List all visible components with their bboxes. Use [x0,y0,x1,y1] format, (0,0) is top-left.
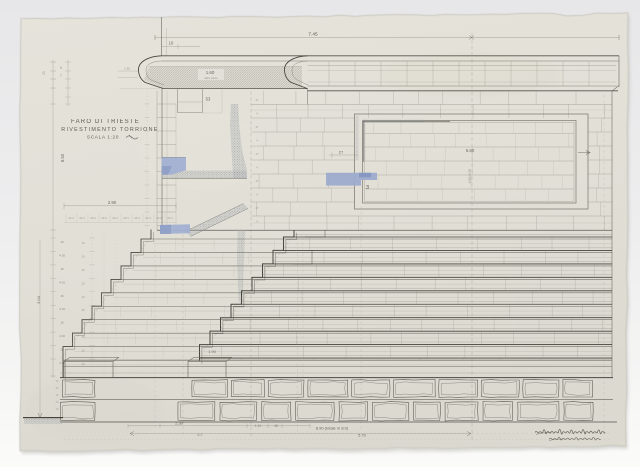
svg-text:48: 48 [274,424,278,428]
svg-text:10: 10 [81,349,85,353]
svg-text:47: 47 [255,179,259,183]
svg-text:1.30: 1.30 [124,67,130,71]
svg-text:8.90 (totale m 8.0): 8.90 (totale m 8.0) [316,426,349,431]
svg-text:8.50: 8.50 [60,153,65,162]
svg-text:3: 3 [366,185,369,191]
svg-text:20 4: 20 4 [68,216,74,220]
svg-text:16: 16 [60,267,64,271]
svg-text:16: 16 [60,294,64,298]
svg-text:20 4: 20 4 [79,216,85,220]
svg-text:7: 7 [60,74,62,78]
svg-text:0.50×0.50: 0.50×0.50 [468,169,472,183]
svg-text:5: 5 [60,66,62,70]
svg-text:4 16: 4 16 [59,280,65,284]
svg-text:20 4: 20 4 [134,216,140,220]
svg-text:10: 10 [169,41,174,46]
svg-text:20 4: 20 4 [123,216,129,220]
svg-text:27: 27 [339,150,344,155]
svg-text:10: 10 [81,295,85,299]
svg-text:16: 16 [60,240,64,244]
svg-text:16: 16 [60,348,64,352]
svg-text:6.2: 6.2 [198,433,203,437]
svg-text:10: 10 [81,308,85,312]
svg-text:SCALA 1:20: SCALA 1:20 [87,135,119,141]
svg-text:4 16: 4 16 [59,307,65,311]
svg-text:10: 10 [81,268,85,272]
svg-text:2.30: 2.30 [175,421,184,426]
svg-text:5.70: 5.70 [358,433,367,438]
svg-text:4 16: 4 16 [59,253,65,257]
svg-text:4 16: 4 16 [59,361,65,365]
svg-text:RIVESTIMENTO TORRIONE: RIVESTIMENTO TORRIONE [61,127,158,133]
svg-text:47: 47 [255,152,259,156]
svg-text:1.10: 1.10 [255,424,262,428]
svg-text:altra parte: altra parte [204,76,218,80]
svg-text:20 4: 20 4 [167,216,173,220]
svg-text:20 4: 20 4 [90,216,96,220]
svg-text:20 4: 20 4 [112,216,118,220]
svg-text:10: 10 [81,335,85,339]
svg-text:53: 53 [206,97,211,102]
svg-text:10: 10 [81,241,85,245]
svg-text:10: 10 [81,322,85,326]
svg-text:10: 10 [81,254,85,258]
svg-text:7.45: 7.45 [308,32,318,38]
svg-text:10: 10 [81,281,85,285]
svg-text:20 4: 20 4 [156,216,162,220]
svg-text:29: 29 [42,71,46,75]
svg-text:4 16: 4 16 [59,334,65,338]
svg-text:20 4: 20 4 [145,216,151,220]
svg-text:47: 47 [255,206,259,210]
svg-text:10: 10 [81,362,85,366]
svg-text:FARO DI TRIESTE: FARO DI TRIESTE [71,119,140,125]
svg-text:47: 47 [255,98,259,102]
svg-text:3.04: 3.04 [36,295,41,304]
svg-text:16: 16 [60,321,64,325]
svg-text:2.90: 2.90 [108,200,117,205]
svg-text:1.90: 1.90 [208,349,217,354]
svg-text:47: 47 [255,125,259,129]
svg-text:20 4: 20 4 [101,216,107,220]
svg-text:1.60: 1.60 [206,70,215,75]
svg-text:6.80: 6.80 [466,148,475,153]
